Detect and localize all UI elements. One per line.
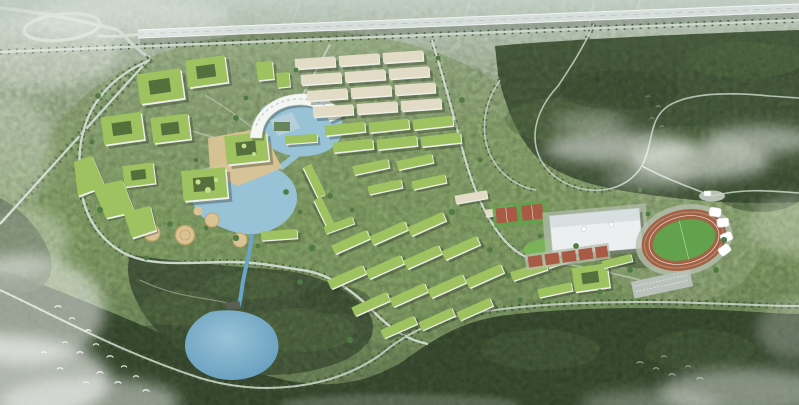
campus-masterplan-svg	[0, 0, 799, 405]
forest-pond	[185, 310, 279, 380]
dormitory-row	[401, 98, 445, 115]
gym-skylight	[609, 222, 614, 227]
dormitory-row	[395, 82, 439, 99]
academic-slab-building	[261, 229, 301, 245]
dormitory-row	[351, 85, 395, 102]
pond-pier	[226, 301, 241, 309]
dormitory-row	[301, 72, 345, 89]
academic-courtyard-building	[136, 68, 189, 109]
academic-courtyard-building	[185, 55, 233, 92]
dormitory-row	[339, 53, 383, 70]
dormitory-row	[345, 69, 389, 86]
dormitory-row	[357, 101, 401, 118]
academic-courtyard-building	[122, 162, 159, 190]
academic-courtyard-building	[181, 167, 232, 206]
aerial-rendering	[0, 0, 799, 405]
dormitory-row	[383, 50, 427, 67]
academic-courtyard-building	[224, 131, 273, 169]
dormitory-row	[307, 88, 351, 105]
dormitory-row	[389, 66, 433, 83]
stadium-gate-canopy	[704, 191, 711, 196]
dormitory-row	[313, 104, 357, 121]
dormitory-row	[295, 56, 339, 73]
academic-courtyard-building	[150, 113, 195, 148]
academic-courtyard-building	[100, 111, 149, 149]
academic-slab-building	[285, 134, 321, 148]
stadium-north-plaza	[699, 191, 725, 202]
gym-skylight	[581, 226, 586, 231]
